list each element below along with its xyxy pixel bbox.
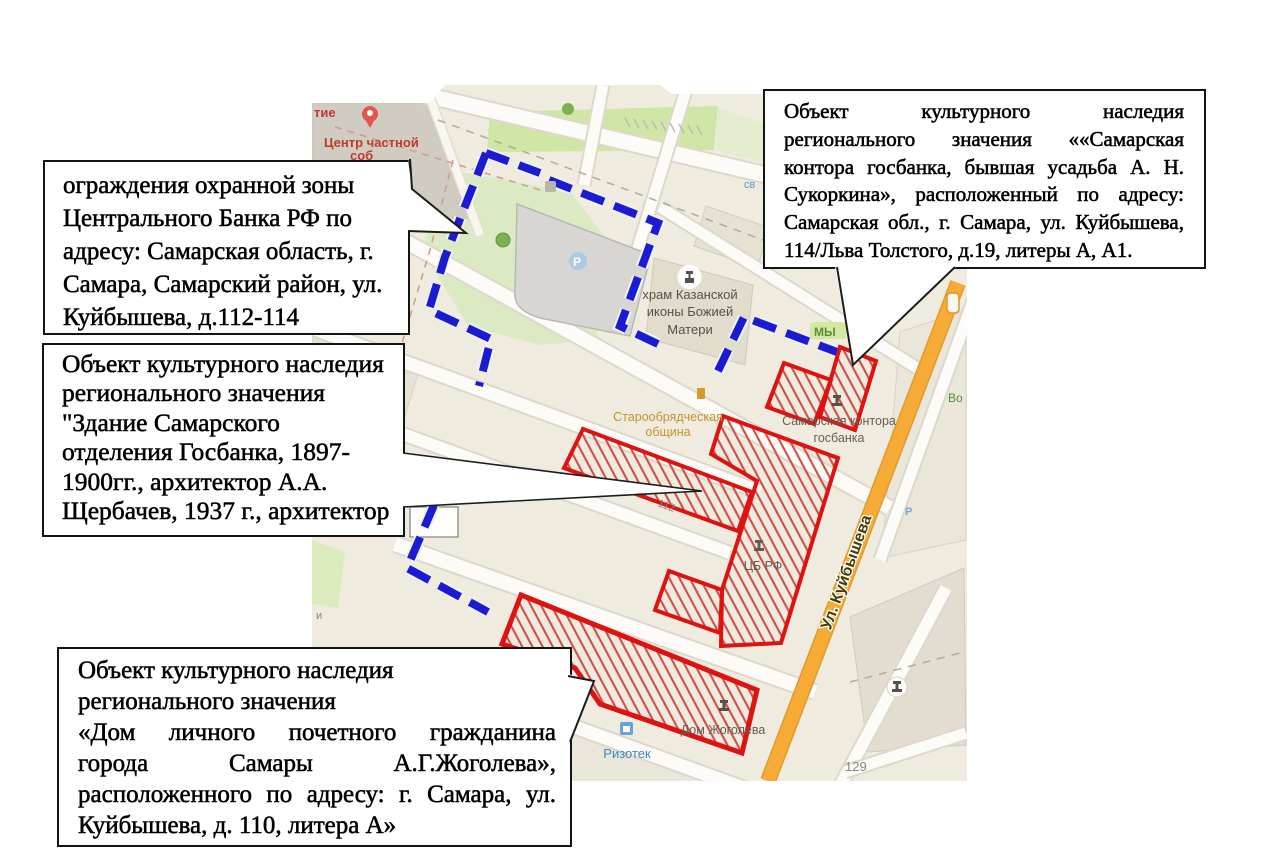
- svg-text:Р: Р: [573, 255, 581, 269]
- svg-text:ЦБ РФ: ЦБ РФ: [744, 559, 783, 573]
- svg-text:иконы Божией: иконы Божией: [647, 304, 734, 319]
- svg-text:МЫ: МЫ: [814, 325, 836, 339]
- svg-text:и: и: [316, 610, 322, 622]
- svg-text:община: община: [645, 425, 690, 439]
- svg-text:Ризотек: Ризотек: [603, 746, 651, 761]
- svg-text:Самарская контора: Самарская контора: [782, 414, 896, 428]
- svg-text:тие: тие: [314, 105, 336, 120]
- svg-text:Во: Во: [948, 391, 963, 405]
- svg-text:храм Казанской: храм Казанской: [642, 287, 737, 302]
- svg-text:св: св: [744, 179, 756, 191]
- svg-text:Р: Р: [905, 506, 912, 518]
- svg-text:Матери: Матери: [667, 322, 712, 337]
- svg-text:Старообрядческая: Старообрядческая: [613, 410, 723, 424]
- svg-text:129: 129: [845, 759, 867, 774]
- svg-text:госбанка: госбанка: [814, 431, 865, 445]
- svg-text:Дом Жоголева: Дом Жоголева: [681, 723, 766, 737]
